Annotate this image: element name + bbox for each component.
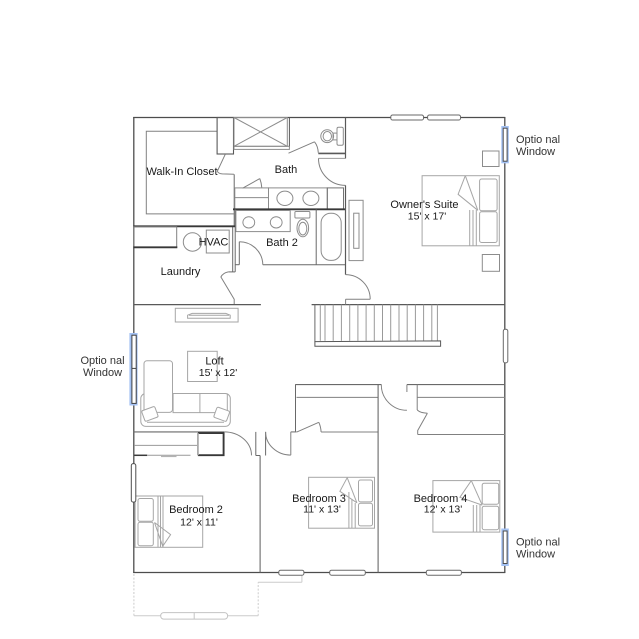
svg-text:Bath 2: Bath 2 xyxy=(266,237,298,249)
svg-text:11' x 13': 11' x 13' xyxy=(303,504,341,516)
svg-text:Window: Window xyxy=(516,146,555,158)
svg-text:12' x 13': 12' x 13' xyxy=(424,504,462,516)
svg-text:Window: Window xyxy=(83,367,122,379)
svg-text:Loft: Loft xyxy=(205,356,223,368)
svg-text:Walk-In Closet: Walk-In Closet xyxy=(146,166,217,178)
svg-text:Bedroom 2: Bedroom 2 xyxy=(169,504,223,516)
svg-text:Optio nal: Optio nal xyxy=(80,355,124,367)
svg-text:15' x 12': 15' x 12' xyxy=(199,367,237,379)
svg-text:Window: Window xyxy=(516,549,555,561)
svg-text:Optio nal: Optio nal xyxy=(516,134,560,146)
svg-text:12' x 11': 12' x 11' xyxy=(180,517,218,529)
svg-text:Laundry: Laundry xyxy=(161,266,201,278)
svg-text:Owner's Suite: Owner's Suite xyxy=(390,199,458,211)
svg-text:15' x 17': 15' x 17' xyxy=(408,211,446,223)
svg-text:HVAC: HVAC xyxy=(199,237,229,249)
svg-text:Optio nal: Optio nal xyxy=(516,537,560,549)
svg-text:Bath: Bath xyxy=(275,164,298,176)
